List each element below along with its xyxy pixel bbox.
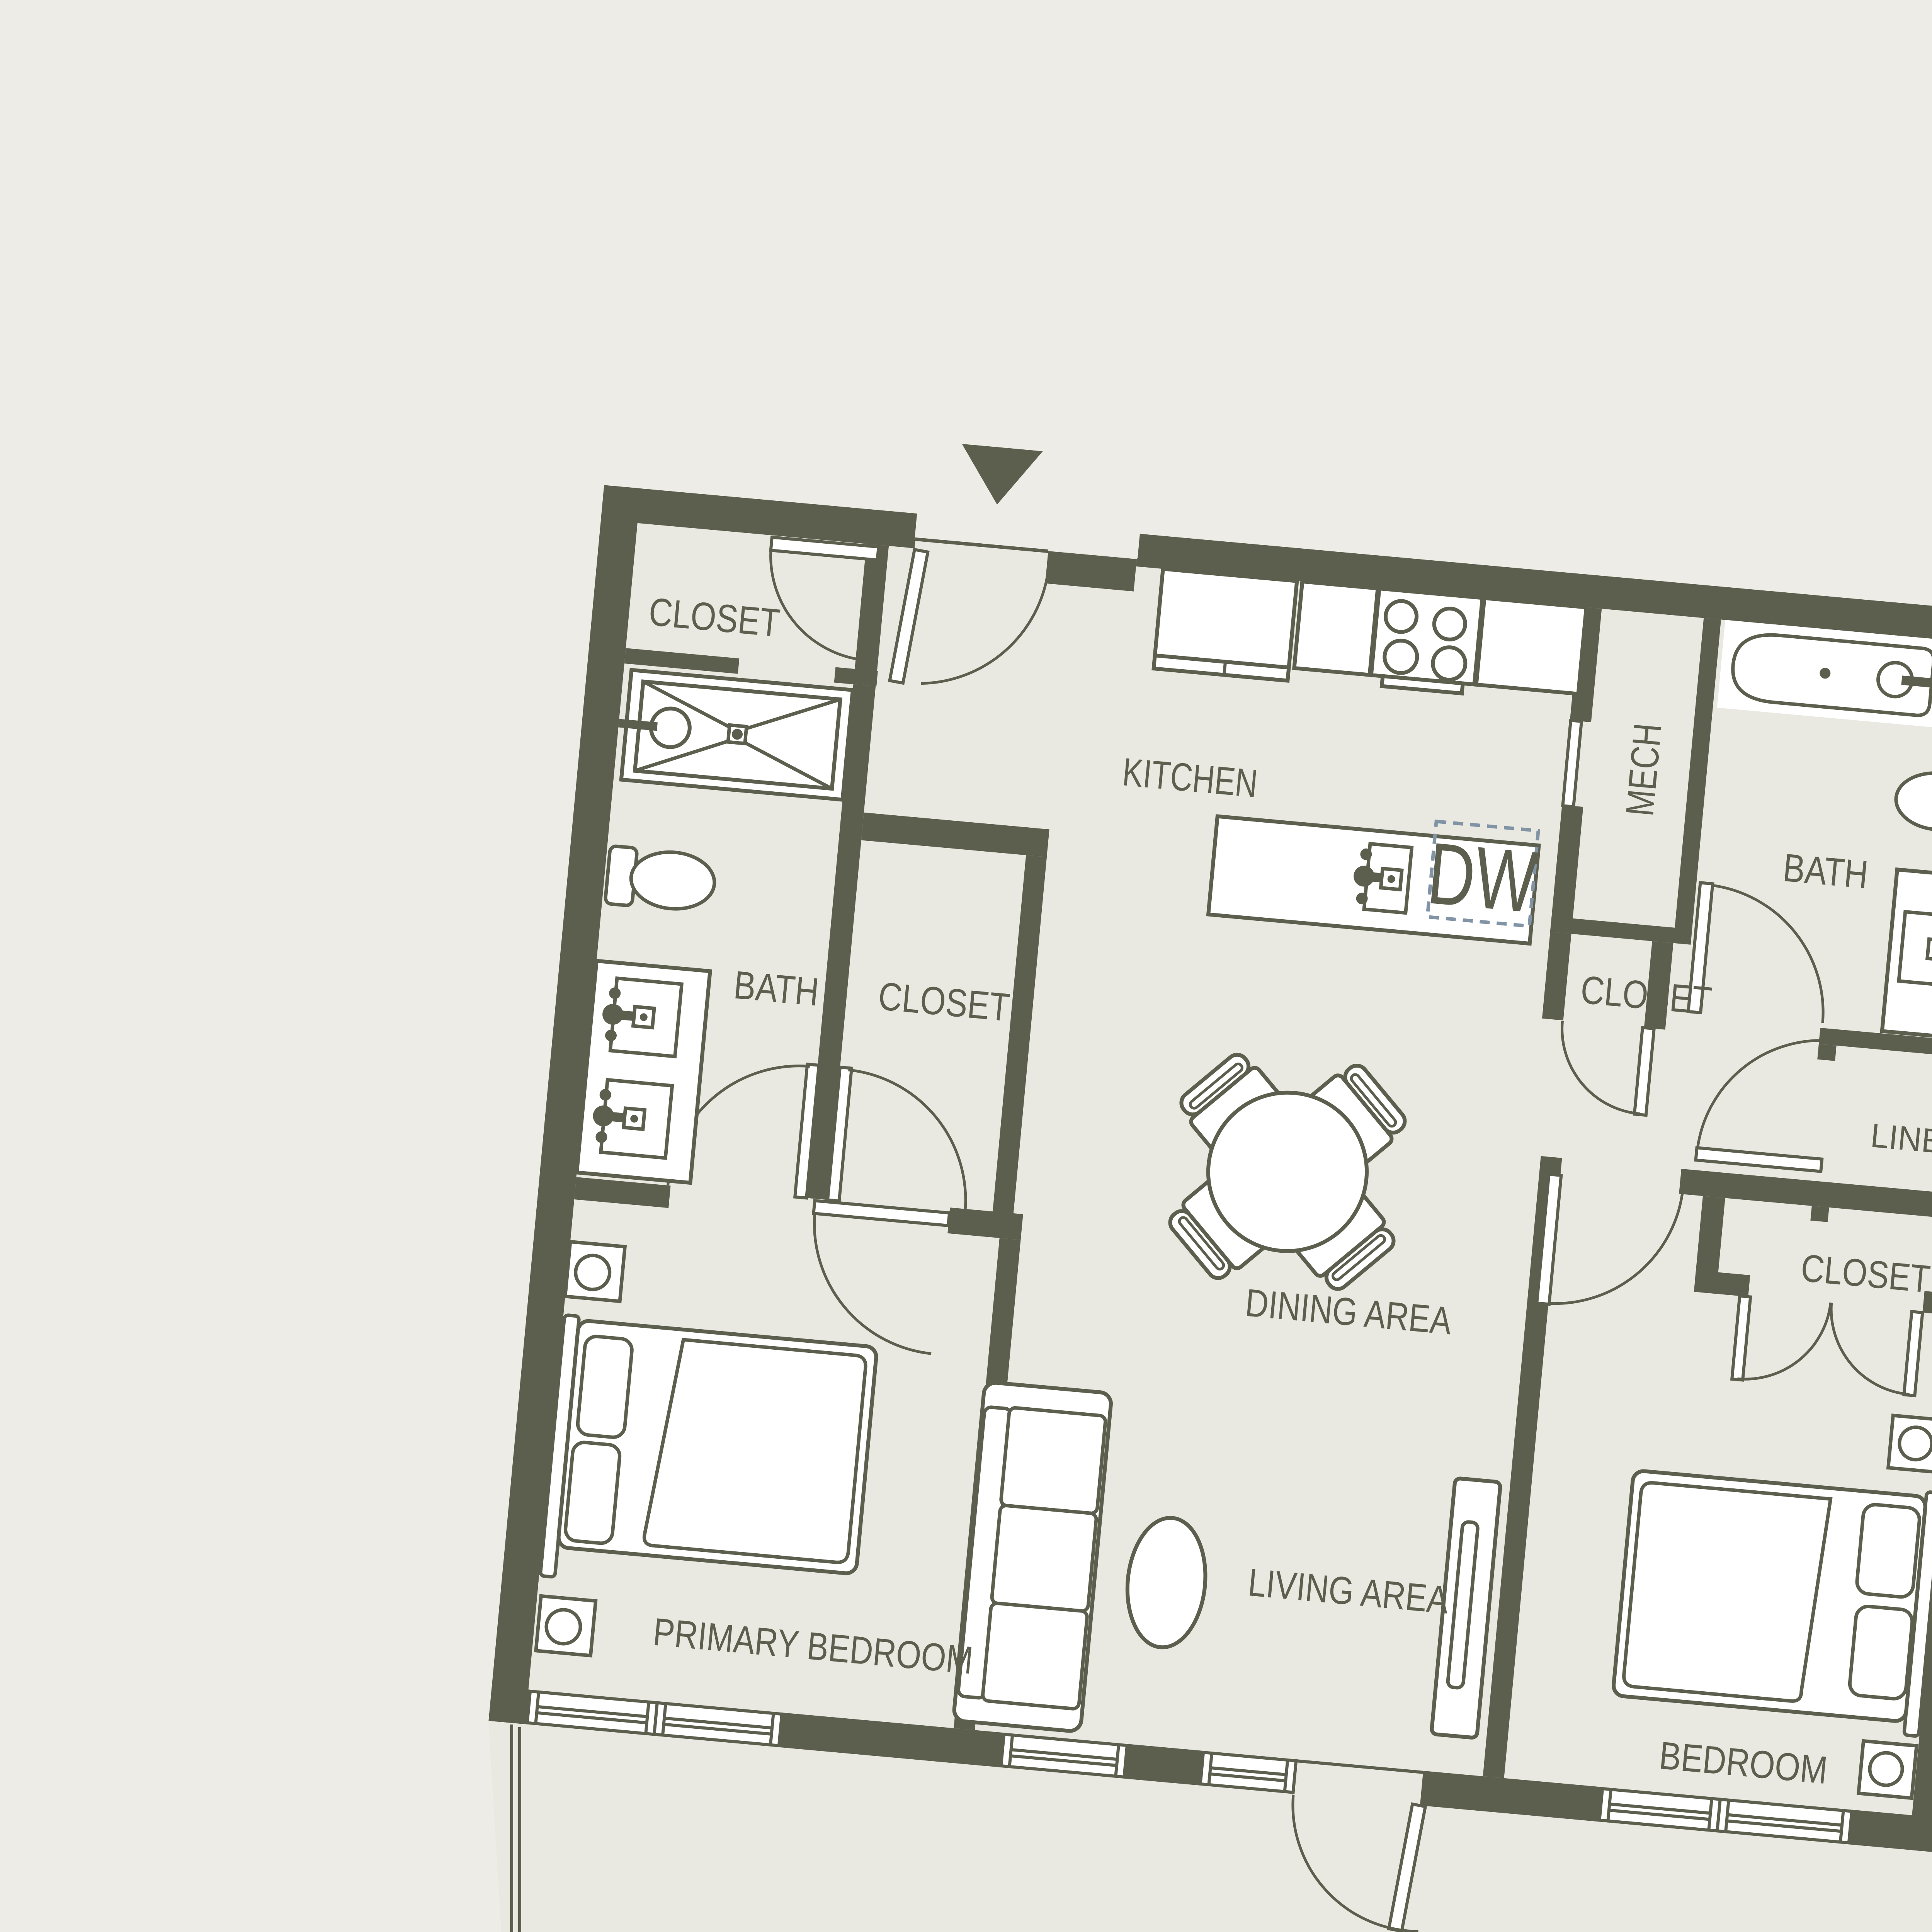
svg-text:DW: DW: [1424, 824, 1541, 931]
svg-text:BATH: BATH: [732, 963, 821, 1014]
svg-text:BATH: BATH: [1781, 845, 1870, 897]
svg-text:MECH: MECH: [1617, 721, 1670, 818]
